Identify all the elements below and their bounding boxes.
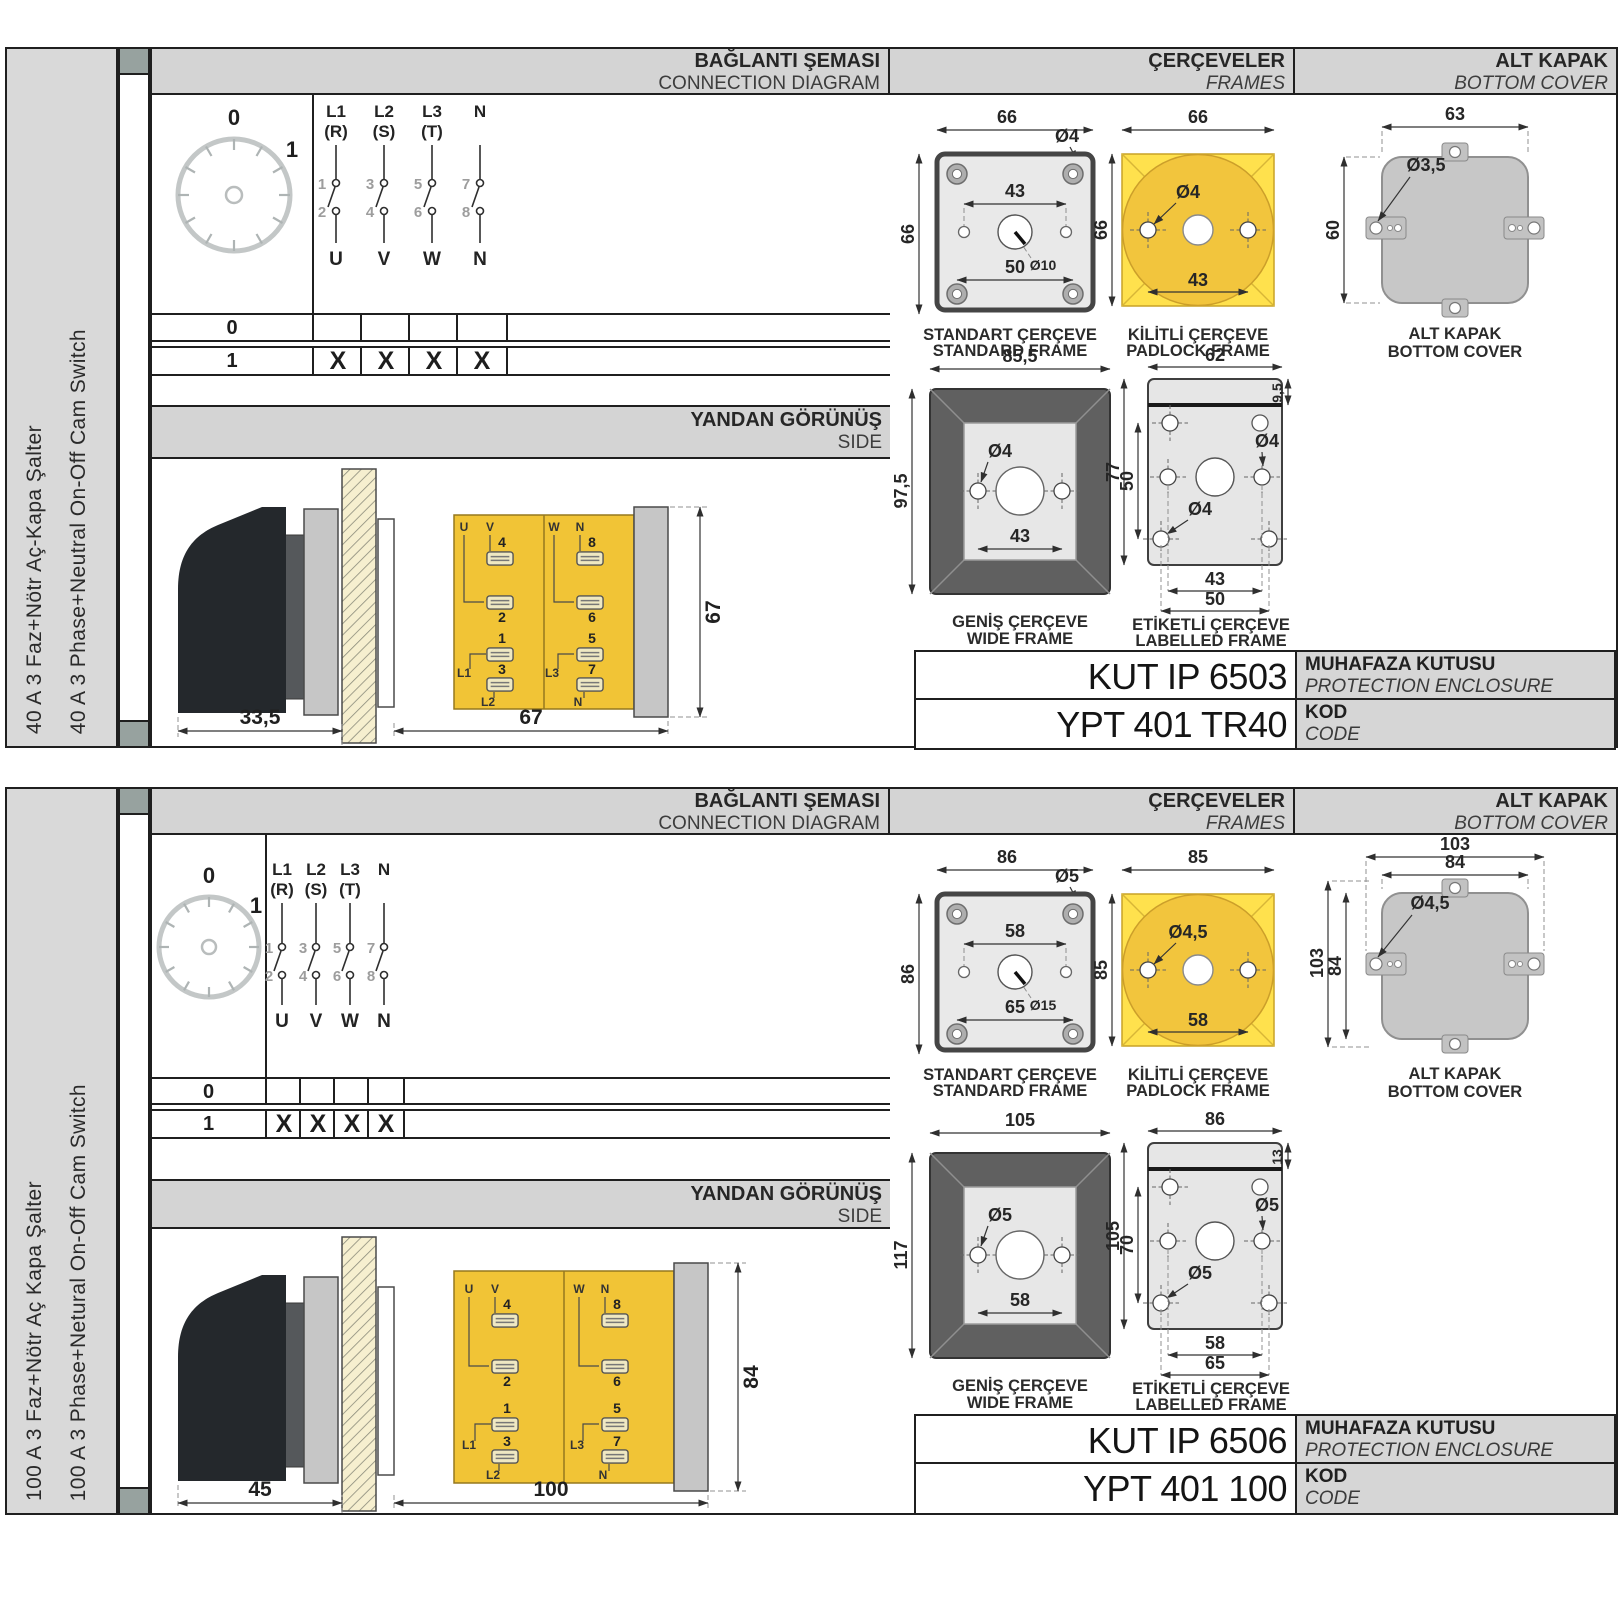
svg-text:L1: L1 <box>326 102 346 121</box>
svg-text:4: 4 <box>366 204 375 221</box>
enclosure-label-box: MUHAFAZA KUTUSU PROTECTION ENCLOSURE <box>1295 650 1616 700</box>
switch-handle <box>178 507 286 713</box>
pole-l1: L1(R) U 12 <box>265 860 294 1032</box>
svg-text:L3: L3 <box>570 1438 584 1452</box>
table-row-1: 1 X X X X <box>152 1109 890 1139</box>
pole-l3: L3(T) W 56 <box>414 102 443 270</box>
dim-label: 62 <box>1205 345 1225 365</box>
header-bottom-cover: ALT KAPAK BOTTOM COVER <box>1295 789 1616 835</box>
header-frames: ÇERÇEVELER FRAMES <box>890 789 1295 835</box>
cover-caption-tr: ALT KAPAK <box>1409 325 1502 343</box>
svg-text:5: 5 <box>333 940 341 957</box>
side-view-drawing: UV 4 2 1 3 L1 L2 WN 8 6 <box>154 461 890 748</box>
cover-caption-tr: ALT KAPAK <box>1409 1065 1502 1083</box>
shaft-hole <box>996 467 1044 515</box>
spine-column <box>118 787 150 1515</box>
table-row-1: 1 X X X X <box>152 346 890 376</box>
code-label-en: CODE <box>1305 1488 1614 1509</box>
labelled-frame-drawing: 62 9,5 77 50 Ø4 Ø4 43 50 E <box>1112 353 1295 647</box>
sidebar-title-en: 100 A 3 Phase+Netural On-Off Cam Switch <box>67 1084 91 1501</box>
row-1-mark-w: X <box>408 348 458 374</box>
svg-text:(R): (R) <box>270 880 294 899</box>
frame-caption-tr: GENİŞ ÇERÇEVE <box>952 1377 1088 1395</box>
row-0-cell-v <box>360 315 410 340</box>
svg-text:W: W <box>341 1011 359 1032</box>
side-header-tr: YANDAN GÖRÜNÜŞ <box>152 1183 882 1206</box>
svg-text:2: 2 <box>318 204 326 221</box>
table-row-0: 0 <box>152 313 890 342</box>
dim-label: Ø5 <box>988 1205 1012 1225</box>
svg-text:5: 5 <box>414 176 422 193</box>
code-label-tr: KOD <box>1305 1466 1614 1488</box>
wide-frame-drawing: 85,5 97,5 Ø4 43 GENİŞ ÇERÇEVE WIDE FRAME <box>900 353 1115 647</box>
front-plate <box>304 1277 338 1483</box>
svg-text:L3: L3 <box>545 666 559 680</box>
svg-text:W: W <box>548 520 560 534</box>
svg-text:4: 4 <box>498 534 506 550</box>
dim-body-depth: 100 <box>533 1478 568 1501</box>
header-cover-tr: ALT KAPAK <box>1295 50 1608 73</box>
svg-text:U: U <box>329 249 343 270</box>
switch-handle <box>178 1275 286 1481</box>
dim-label: 103 <box>1307 948 1327 978</box>
enclosure-label-tr: MUHAFAZA KUTUSU <box>1305 654 1614 676</box>
frame-caption-en: WIDE FRAME <box>967 1394 1073 1412</box>
spine-column <box>118 47 150 748</box>
row-0-cell-u <box>312 315 362 340</box>
header-bottom-cover: ALT KAPAK BOTTOM COVER <box>1295 49 1616 95</box>
header-connection-diagram: BAĞLANTI ŞEMASI CONNECTION DIAGRAM <box>152 49 890 95</box>
svg-text:7: 7 <box>588 661 596 677</box>
svg-text:(T): (T) <box>339 880 361 899</box>
svg-text:U: U <box>275 1011 289 1032</box>
pole-l2: L2(S) V 34 <box>366 102 396 270</box>
product-code-row: YPT 401 TR40 <box>914 698 1297 750</box>
row-0-cell-n <box>367 1079 405 1103</box>
rotary-dial-diagram: 0 1 <box>152 835 265 1077</box>
section-40a: 40 A 3 Faz+Nötr Aç-Kapa Şalter 40 A 3 Ph… <box>0 47 1623 748</box>
header-connection-tr: BAĞLANTI ŞEMASI <box>152 50 880 73</box>
svg-text:V: V <box>378 249 391 270</box>
enclosure-label-box: MUHAFAZA KUTUSU PROTECTION ENCLOSURE <box>1295 1414 1616 1464</box>
dim-label: 66 <box>1188 107 1208 127</box>
row-0-cell-w <box>408 315 458 340</box>
dial-position-0: 0 <box>228 105 240 130</box>
row-1-mark-u: X <box>312 348 362 374</box>
svg-text:7: 7 <box>367 940 375 957</box>
side-header-en: SIDE <box>152 1206 882 1227</box>
dim-label: Ø4,5 <box>1168 922 1207 942</box>
dim-label: 117 <box>891 1240 911 1269</box>
svg-text:U: U <box>460 520 469 534</box>
frame-caption-en: LABELLED FRAME <box>1135 1396 1286 1414</box>
svg-text:1: 1 <box>503 1400 511 1416</box>
spine-cap-top <box>120 49 148 75</box>
sidebar-title-en: 40 A 3 Phase+Neutral On-Off Cam Switch <box>67 329 91 734</box>
dim-label: Ø4,5 <box>1410 893 1449 913</box>
standard-frame-drawing: 66 Ø4 66 43 Ø10 50 STANDART ÇERÇEVE STAN… <box>907 100 1112 358</box>
sidebar-title-tr: 100 A 3 Faz+Nötr Aç Kapa Şalter <box>23 1181 47 1501</box>
spacer <box>378 1287 394 1475</box>
enclosure-code-row: KUT IP 6503 <box>914 650 1297 700</box>
svg-text:N: N <box>601 1282 610 1296</box>
frame-caption-en: PADLOCK FRAME <box>1126 1082 1270 1100</box>
pole-l2: L2(S) V 34 <box>299 860 328 1032</box>
section-100a: 100 A 3 Faz+Nötr Aç Kapa Şalter 100 A 3 … <box>0 787 1623 1515</box>
standard-frame-drawing: 86 Ø5 86 58 Ø15 65 STANDART ÇERÇEVE STAN… <box>907 840 1112 1098</box>
dim-label: 43 <box>1005 181 1025 201</box>
svg-text:(S): (S) <box>305 880 328 899</box>
svg-text:N: N <box>377 1011 391 1032</box>
row-0-cell-w <box>333 1079 369 1103</box>
svg-text:L1: L1 <box>462 1438 476 1452</box>
spacer <box>378 519 394 707</box>
rear-plate <box>634 507 668 717</box>
row-1-mark-n: X <box>367 1111 405 1137</box>
header-cover-en: BOTTOM COVER <box>1295 73 1608 94</box>
row-1-mark-v: X <box>299 1111 335 1137</box>
enclosure-label-en: PROTECTION ENCLOSURE <box>1305 676 1614 697</box>
header-frames-tr: ÇERÇEVELER <box>890 790 1285 813</box>
svg-text:V: V <box>310 1011 323 1032</box>
enclosure-code-row: KUT IP 6506 <box>914 1414 1297 1464</box>
header-cover-tr: ALT KAPAK <box>1295 790 1608 813</box>
dim-label: 58 <box>1188 1010 1208 1030</box>
cover-caption-en: BOTTOM COVER <box>1388 343 1523 361</box>
svg-text:(T): (T) <box>421 122 443 141</box>
row-0-cell-v <box>299 1079 335 1103</box>
dim-label: 43 <box>1188 270 1208 290</box>
dim-body-height: 67 <box>702 600 725 623</box>
product-code: YPT 401 100 <box>1083 1468 1287 1509</box>
front-plate <box>304 509 338 715</box>
spine-cap-top <box>120 789 148 815</box>
contacts-schematic: L1(R) U 12 L2(S) V 34 L3(T) W <box>267 835 890 1077</box>
dim-label: Ø4 <box>1255 431 1279 451</box>
dim-body-depth: 67 <box>519 706 542 729</box>
svg-text:8: 8 <box>462 204 470 221</box>
svg-text:L3: L3 <box>340 860 360 879</box>
shaft-hole <box>1183 955 1213 985</box>
pole-l1: L1(R) U 12 <box>318 102 348 270</box>
side-header-en: SIDE <box>152 432 882 453</box>
svg-text:7: 7 <box>613 1433 621 1449</box>
code-label-box: KOD CODE <box>1295 698 1616 750</box>
dim-label: 13 <box>1269 1149 1285 1165</box>
code-label-en: CODE <box>1305 724 1614 745</box>
dim-label: 66 <box>997 107 1017 127</box>
wide-frame-drawing: 105 117 Ø5 58 GENİŞ ÇERÇEVE WIDE FRAME <box>900 1117 1115 1411</box>
svg-text:L1: L1 <box>272 860 292 879</box>
svg-text:1: 1 <box>498 630 506 646</box>
svg-text:4: 4 <box>503 1296 511 1312</box>
spine-cap-bottom <box>120 720 148 746</box>
pole-n: N N 78 <box>462 102 487 270</box>
svg-text:N: N <box>599 1468 608 1482</box>
svg-text:U: U <box>465 1282 474 1296</box>
row-1-mark-w: X <box>333 1111 369 1137</box>
enclosure-code: KUT IP 6503 <box>1088 656 1287 697</box>
dim-label: 66 <box>1091 220 1111 240</box>
dim-label: 86 <box>1205 1109 1225 1129</box>
dim-label: 85 <box>1188 847 1208 867</box>
svg-text:N: N <box>473 249 487 270</box>
svg-text:8: 8 <box>367 968 375 985</box>
dim-label: Ø5 <box>1188 1263 1212 1283</box>
svg-text:3: 3 <box>366 176 374 193</box>
frame-caption-tr: GENİŞ ÇERÇEVE <box>952 613 1088 631</box>
dim-front-depth: 33,5 <box>240 706 281 729</box>
dim-label: 65 <box>1005 997 1025 1017</box>
shaft-hole <box>996 1231 1044 1279</box>
frame-caption-en: LABELLED FRAME <box>1135 632 1286 650</box>
header-frames: ÇERÇEVELER FRAMES <box>890 49 1295 95</box>
dim-label: 103 <box>1440 834 1470 854</box>
enclosure-label-en: PROTECTION ENCLOSURE <box>1305 1440 1614 1461</box>
svg-text:6: 6 <box>613 1373 621 1389</box>
svg-text:N: N <box>574 695 583 709</box>
dim-label: 50 <box>1005 257 1025 277</box>
dim-label: Ø4 <box>1055 126 1079 146</box>
dim-label: 58 <box>1005 921 1025 941</box>
labelled-frame-drawing: 86 13 105 70 Ø5 Ø5 58 65 E <box>1112 1117 1295 1411</box>
svg-text:L1: L1 <box>457 666 471 680</box>
svg-text:L2: L2 <box>374 102 394 121</box>
dim-label: 105 <box>1005 1110 1035 1130</box>
svg-text:L2: L2 <box>306 860 326 879</box>
svg-text:2: 2 <box>265 968 273 985</box>
enclosure-code: KUT IP 6506 <box>1088 1420 1287 1461</box>
svg-text:2: 2 <box>498 609 506 625</box>
main-panel: BAĞLANTI ŞEMASI CONNECTION DIAGRAM ÇERÇE… <box>150 787 1618 1515</box>
row-1-label: 1 <box>152 348 314 374</box>
contacts-schematic: L1(R) U 12 L2(S) V 34 L3(T) W <box>314 95 890 313</box>
dim-label: 85 <box>1091 960 1111 980</box>
code-label-tr: KOD <box>1305 702 1614 724</box>
row-1-label: 1 <box>152 1111 267 1137</box>
dim-label: 65 <box>1205 1353 1225 1373</box>
side-view-header: YANDAN GÖRÜNÜŞ SIDE <box>152 1179 890 1229</box>
header-frames-en: FRAMES <box>890 813 1285 834</box>
cover-caption-en: BOTTOM COVER <box>1388 1083 1523 1101</box>
padlock-frame-drawing: 85 85 Ø4,5 58 KİLİTLİ ÇERÇEVE PADLOCK FR… <box>1102 840 1294 1098</box>
dim-label: 9,5 <box>1269 383 1285 403</box>
pole-l3: L3(T) W 56 <box>333 860 361 1032</box>
dim-label: 70 <box>1117 1235 1137 1255</box>
dim-label: Ø4 <box>1176 182 1200 202</box>
dim-label: Ø4 <box>988 441 1012 461</box>
svg-text:3: 3 <box>299 940 307 957</box>
svg-text:L3: L3 <box>422 102 442 121</box>
dim-label: Ø10 <box>1030 257 1057 273</box>
row-1-mark-u: X <box>265 1111 301 1137</box>
shaft-hole <box>1196 1222 1234 1260</box>
dial-position-0: 0 <box>203 863 215 888</box>
shaft-hole <box>1196 458 1234 496</box>
header-connection-en: CONNECTION DIAGRAM <box>152 813 880 834</box>
header-frames-tr: ÇERÇEVELER <box>890 50 1285 73</box>
svg-text:N: N <box>576 520 585 534</box>
dim-label: 86 <box>997 847 1017 867</box>
rotary-dial-diagram: 0 1 <box>152 95 312 313</box>
dim-label: 66 <box>898 224 918 244</box>
header-connection-diagram: BAĞLANTI ŞEMASI CONNECTION DIAGRAM <box>152 789 890 835</box>
svg-text:V: V <box>491 1282 499 1296</box>
header-cover-en: BOTTOM COVER <box>1295 813 1608 834</box>
dial-position-1: 1 <box>250 893 262 918</box>
dim-front-depth: 45 <box>248 1478 272 1501</box>
row-1-mark-v: X <box>360 348 410 374</box>
svg-text:N: N <box>474 102 486 121</box>
code-label-box: KOD CODE <box>1295 1462 1616 1515</box>
row-0-label: 0 <box>152 315 314 340</box>
svg-text:N: N <box>378 860 390 879</box>
sidebar-title-tr: 40 A 3 Faz+Nötr Aç-Kapa Şalter <box>23 425 47 734</box>
svg-text:(R): (R) <box>324 122 348 141</box>
dim-label: Ø5 <box>1055 866 1079 886</box>
dim-label: Ø5 <box>1255 1195 1279 1215</box>
product-code: YPT 401 TR40 <box>1056 704 1287 745</box>
dim-label: 50 <box>1205 589 1225 609</box>
svg-text:6: 6 <box>333 968 341 985</box>
svg-text:8: 8 <box>613 1296 621 1312</box>
main-panel: BAĞLANTI ŞEMASI CONNECTION DIAGRAM ÇERÇE… <box>150 47 1618 748</box>
sidebar-100a: 100 A 3 Faz+Nötr Aç Kapa Şalter 100 A 3 … <box>5 787 118 1515</box>
dim-label: Ø15 <box>1030 997 1057 1013</box>
rear-plate <box>674 1263 708 1491</box>
product-code-row: YPT 401 100 <box>914 1462 1297 1515</box>
dim-label: 60 <box>1323 220 1343 240</box>
svg-text:6: 6 <box>588 609 596 625</box>
svg-text:1: 1 <box>265 940 273 957</box>
svg-text:4: 4 <box>299 968 308 985</box>
pole-n: N N 78 <box>367 860 391 1032</box>
svg-text:(S): (S) <box>373 122 396 141</box>
table-row-0: 0 <box>152 1077 890 1105</box>
row-0-cell-n <box>456 315 508 340</box>
svg-text:5: 5 <box>588 630 596 646</box>
mounting-panel-hatch <box>342 1237 376 1511</box>
side-view-drawing: UV 4 2 1 3 L1 L2 WN 8 6 <box>154 1229 890 1516</box>
svg-text:V: V <box>486 520 494 534</box>
svg-text:6: 6 <box>414 204 422 221</box>
dim-label: 84 <box>1445 852 1465 872</box>
svg-text:L2: L2 <box>486 1468 500 1482</box>
dim-body-height: 84 <box>740 1365 763 1389</box>
dim-label: 58 <box>1010 1290 1030 1310</box>
row-1-mark-n: X <box>456 348 508 374</box>
header-frames-en: FRAMES <box>890 73 1285 94</box>
dim-label: Ø4 <box>1188 499 1212 519</box>
svg-text:7: 7 <box>462 176 470 193</box>
dim-label: 85,5 <box>1002 346 1037 366</box>
dim-label: 97,5 <box>891 473 911 508</box>
dim-label: 43 <box>1010 526 1030 546</box>
dim-label: Ø3,5 <box>1406 155 1445 175</box>
svg-text:3: 3 <box>503 1433 511 1449</box>
dim-label: 86 <box>898 964 918 984</box>
frame-caption-en: STANDARD FRAME <box>933 1082 1088 1100</box>
side-header-tr: YANDAN GÖRÜNÜŞ <box>152 409 882 432</box>
enclosure-label-tr: MUHAFAZA KUTUSU <box>1305 1418 1614 1440</box>
header-connection-tr: BAĞLANTI ŞEMASI <box>152 790 880 813</box>
svg-text:8: 8 <box>588 534 596 550</box>
shaft-hole <box>1183 215 1213 245</box>
svg-text:2: 2 <box>503 1373 511 1389</box>
svg-text:1: 1 <box>318 176 326 193</box>
dim-label: 58 <box>1205 1333 1225 1353</box>
bottom-cover-drawing: 63 60 Ø3,5 ALT KAPAK BOTTOM COVER <box>1310 109 1600 359</box>
dim-label: 43 <box>1205 569 1225 589</box>
dial-position-1: 1 <box>286 137 298 162</box>
padlock-frame-drawing: 66 66 Ø4 43 KİLİTLİ ÇERÇEVE PADLOCK FRAM… <box>1102 100 1294 358</box>
dim-label: 63 <box>1445 104 1465 124</box>
svg-text:3: 3 <box>498 661 506 677</box>
bottom-cover-drawing: 103 84 103 84 Ø4,5 ALT KAPAK BO <box>1310 845 1600 1101</box>
dim-label: 50 <box>1117 471 1137 491</box>
svg-text:5: 5 <box>613 1400 621 1416</box>
svg-text:L2: L2 <box>481 695 495 709</box>
spine-cap-bottom <box>120 1487 148 1513</box>
svg-text:W: W <box>423 249 441 270</box>
frame-caption-en: WIDE FRAME <box>967 630 1073 648</box>
row-0-cell-u <box>265 1079 301 1103</box>
catalog-page: { "palette":{"panel_gray":"#d9d9d9","hea… <box>0 0 1623 1623</box>
mounting-panel-hatch <box>342 469 376 743</box>
sidebar-40a: 40 A 3 Faz+Nötr Aç-Kapa Şalter 40 A 3 Ph… <box>5 47 118 748</box>
svg-text:W: W <box>573 1282 585 1296</box>
header-connection-en: CONNECTION DIAGRAM <box>152 73 880 94</box>
dim-label: 84 <box>1325 956 1345 976</box>
row-0-label: 0 <box>152 1079 267 1103</box>
side-view-header: YANDAN GÖRÜNÜŞ SIDE <box>152 405 890 459</box>
